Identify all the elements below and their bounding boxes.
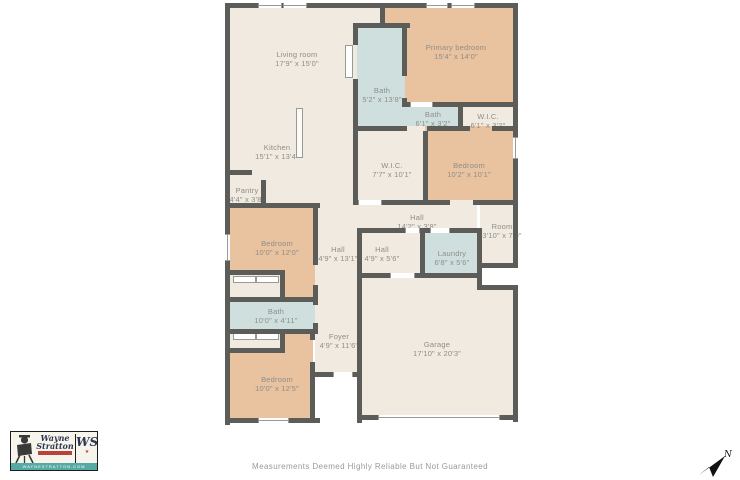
window (378, 415, 500, 420)
room-name: Hall (397, 213, 436, 222)
room-label-hall: Hall4'9" x 5'6" (365, 245, 400, 263)
wall-segment (280, 329, 285, 353)
room-name: Hall (365, 245, 400, 254)
room-label-bath: Bath10'0" x 4'11" (254, 307, 297, 325)
room-label-garage: Garage17'10" x 20'3" (413, 340, 461, 358)
room-name: Hall (318, 245, 357, 254)
room-label-bedroom: Bedroom10'0" x 12'0" (255, 239, 299, 257)
wall-segment (477, 285, 518, 290)
room-name: Bedroom (255, 375, 299, 384)
wall-segment (382, 200, 450, 205)
window (225, 234, 230, 261)
room-label-living-room: Living room17'9" x 15'0" (275, 50, 319, 68)
wall-segment (427, 126, 470, 131)
wall-segment (402, 28, 407, 76)
room-label-kitchen: Kitchen15'1" x 13'4" (255, 143, 299, 161)
wall-segment (225, 329, 318, 334)
room-dimensions: 15'1" x 13'4" (255, 152, 299, 161)
wall-segment (313, 323, 318, 334)
wall-segment (477, 228, 482, 263)
floorplan-page: Living room17'9" x 15'0"Primary bedroom1… (0, 0, 740, 480)
room-name: Foyer (320, 332, 359, 341)
room-label-bedroom: Bedroom10'0" x 12'5" (255, 375, 299, 393)
window (426, 3, 448, 8)
door-leaf (256, 276, 279, 283)
wall-segment (225, 3, 230, 425)
floor-exterior-notch (482, 266, 513, 287)
room-dimensions: 17'10" x 20'3" (413, 349, 461, 358)
wall-segment (423, 131, 428, 202)
wall-segment (313, 297, 318, 305)
room-name: Bath (362, 86, 401, 95)
room-name: Kitchen (255, 143, 299, 152)
floorplan-drawing: Living room17'9" x 15'0"Primary bedroom1… (0, 0, 740, 480)
wall-segment (313, 206, 318, 265)
logo-name-line2: Stratton (36, 442, 74, 450)
logo-red-band (38, 451, 72, 455)
door-opening (333, 372, 353, 377)
room-label-hall: Hall4'9" x 13'1" (318, 245, 357, 263)
wall-segment (513, 3, 518, 266)
door-leaf (345, 45, 353, 78)
door-opening (430, 228, 450, 233)
wall-segment (315, 372, 333, 377)
wall-segment (357, 228, 405, 233)
wall-segment (225, 170, 252, 175)
wall-segment (225, 297, 318, 302)
wall-segment (357, 278, 362, 423)
room-name: Bath (254, 307, 297, 316)
room-dimensions: 4'9" x 5'6" (365, 254, 400, 263)
wall-segment (357, 228, 362, 278)
wall-segment (353, 79, 358, 131)
wall-segment (353, 131, 358, 205)
door-opening (405, 228, 420, 233)
room-dimensions: 4'9" x 11'6" (320, 341, 359, 350)
room-name: W.I.C. (471, 112, 506, 121)
room-dimensions: 10'0" x 4'11" (254, 316, 297, 325)
floor-hall-foyer (315, 205, 360, 377)
wall-segment (492, 126, 518, 131)
room-label-w-i-c-: W.I.C.7'7" x 10'1" (372, 161, 411, 179)
door-opening (358, 200, 382, 205)
room-name: Laundry (435, 249, 470, 258)
window (258, 418, 289, 423)
door-opening (410, 102, 433, 107)
door-leaf (233, 276, 256, 283)
room-name: Pantry (230, 186, 265, 195)
door-leaf (256, 333, 279, 340)
wall-segment (310, 334, 315, 340)
wall-segment (353, 23, 358, 45)
logo-star-icon: ★ (76, 450, 98, 455)
room-label-primary-bedroom: Primary bedroom15'4" x 14'0" (426, 43, 487, 61)
wall-segment (420, 228, 425, 275)
room-dimensions: 10'0" x 12'0" (255, 248, 299, 257)
north-label: N (723, 450, 733, 460)
kitchen-island (296, 108, 303, 158)
room-name: W.I.C. (372, 161, 411, 170)
room-name: Primary bedroom (426, 43, 487, 52)
room-dimensions: 10'2" x 10'1" (447, 170, 491, 179)
wall-segment (477, 263, 518, 268)
north-arrow-icon: N (698, 447, 734, 478)
wall-segment (500, 415, 518, 420)
wall-segment (513, 287, 518, 422)
room-label-bedroom: Bedroom10'2" x 10'1" (447, 161, 491, 179)
wall-segment (473, 200, 518, 205)
measurement-disclaimer: Measurements Deemed Highly Reliable But … (0, 462, 740, 471)
room-name: Bath (416, 110, 451, 119)
wall-segment (225, 203, 320, 208)
floor-primary-bath (357, 26, 405, 131)
room-dimensions: 15'4" x 14'0" (426, 52, 487, 61)
wall-segment (228, 348, 285, 353)
room-name: Garage (413, 340, 461, 349)
wall-segment (280, 273, 285, 300)
wall-segment (353, 126, 407, 131)
room-dimensions: 4'9" x 13'1" (318, 254, 357, 263)
wall-segment (228, 270, 285, 275)
room-dimensions: 10'0" x 12'5" (255, 384, 299, 393)
room-label-pantry: Pantry4'4" x 3'8" (230, 186, 265, 204)
room-name: Living room (275, 50, 319, 59)
window (283, 3, 307, 8)
photographer-illustration-icon (12, 434, 35, 464)
room-name: Bedroom (447, 161, 491, 170)
window (451, 3, 475, 8)
wall-segment (433, 102, 518, 107)
window (513, 137, 518, 159)
door-leaf (233, 333, 256, 340)
room-dimensions: 5'2" x 13'8" (362, 95, 401, 104)
room-label-foyer: Foyer4'9" x 11'6" (320, 332, 359, 350)
logo-monogram: WS (76, 434, 98, 450)
wall-segment (402, 102, 410, 107)
room-dimensions: 6'8" x 5'6" (435, 258, 470, 267)
wall-segment (450, 228, 477, 233)
door-opening (390, 273, 415, 278)
room-dimensions: 17'9" x 15'0" (275, 59, 319, 68)
room-name: Bedroom (255, 239, 299, 248)
room-label-laundry: Laundry6'8" x 5'6" (435, 249, 470, 267)
room-label-bath: Bath5'2" x 13'8" (362, 86, 401, 104)
room-dimensions: 7'7" x 10'1" (372, 170, 411, 179)
window (258, 3, 282, 8)
